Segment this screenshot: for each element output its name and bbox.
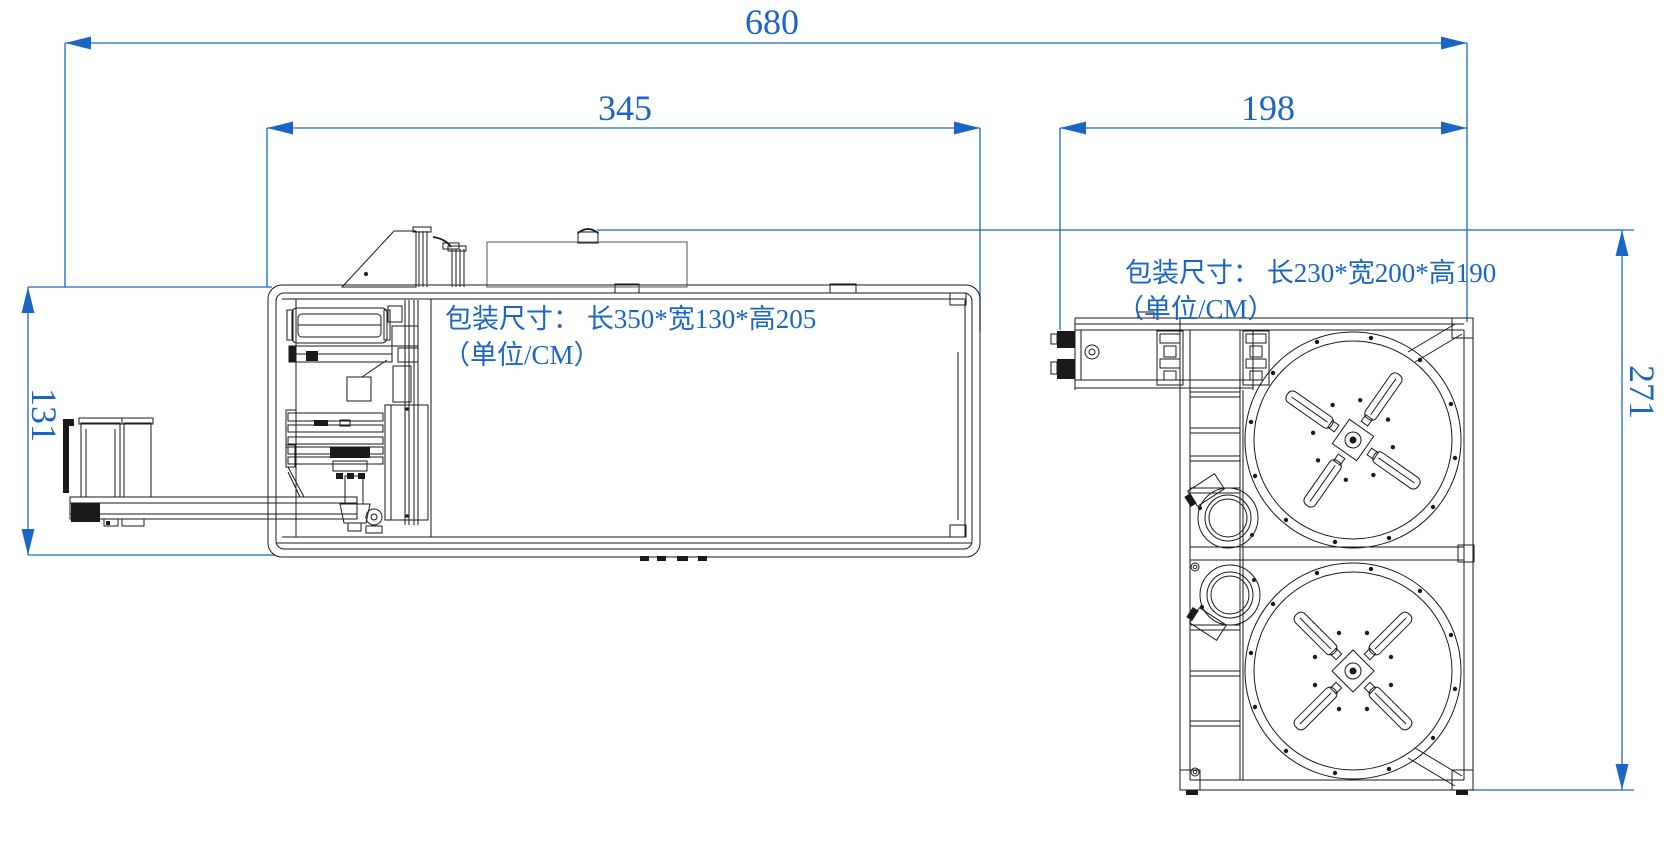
right-machine-infeed-arm xyxy=(1051,318,1269,390)
chain-unit-1 xyxy=(1157,331,1183,385)
right-machine-ladder-column xyxy=(1190,330,1243,780)
cross-fixture-bottom xyxy=(1292,610,1414,732)
left-packing-size-label-line2: （单位/CM） xyxy=(443,340,601,370)
left-machine-top-structures xyxy=(342,227,687,287)
right-machine-frame xyxy=(1075,312,1474,795)
dim-right-machine-depth-text: 271 xyxy=(1624,337,1660,447)
right-machine-drawing xyxy=(1051,312,1474,795)
dim-left-machine-length-text: 345 xyxy=(565,90,685,126)
dimension-345 xyxy=(267,122,980,333)
drawing-canvas xyxy=(0,0,1678,845)
small-turntable-1 xyxy=(1183,474,1258,548)
turntable-bottom xyxy=(1245,563,1461,779)
right-packing-size-label-line2: （单位/CM） xyxy=(1117,294,1275,324)
drawing-sheet: 680 345 198 131 271 包装尺寸： 长350*宽130*高205… xyxy=(0,0,1678,845)
cross-fixture-top xyxy=(1282,369,1424,511)
left-packing-size-label-line1: 包装尺寸： 长350*宽130*高205 xyxy=(445,304,816,334)
left-machine-outfeed-conveyor xyxy=(63,418,357,526)
left-machine-drawing xyxy=(63,227,980,561)
small-turntable-2 xyxy=(1185,565,1260,640)
dim-left-machine-depth-text: 131 xyxy=(26,360,62,470)
turntable-top xyxy=(1245,332,1461,548)
right-packing-size-label-line1: 包装尺寸： 长230*宽200*高190 xyxy=(1125,258,1496,288)
dim-overall-length-text: 680 xyxy=(712,4,832,40)
dim-right-machine-length-text: 198 xyxy=(1208,90,1328,126)
